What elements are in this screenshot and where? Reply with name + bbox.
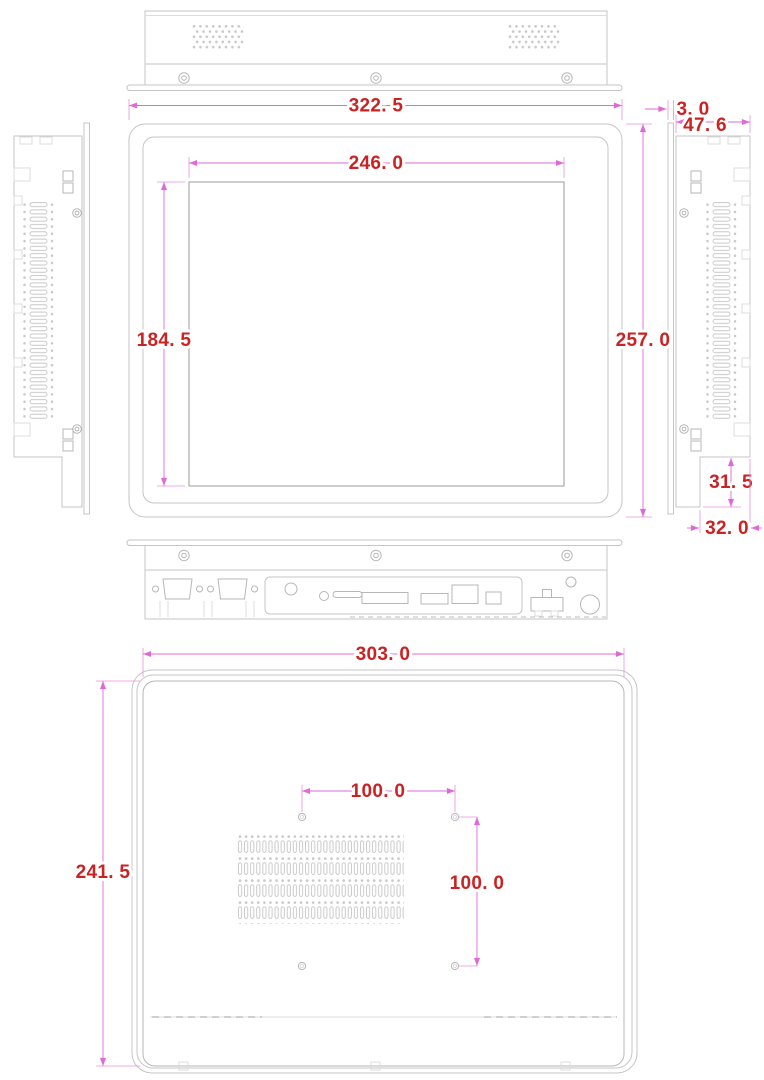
power-button [566,577,576,587]
front-view [129,124,622,517]
screw-icon [179,73,189,83]
power-terminal [531,590,563,617]
left-bezel-edge [84,123,90,514]
top-view [127,11,622,91]
vesa-hole [298,813,305,820]
screw-icon [179,550,189,560]
top-vent-holes-left [192,24,244,49]
dim-rear-height: 241. 5 [76,862,131,883]
dimension-annotations: 322. 5 246. 0 184. 5 257. 0 3. 0 47. 6 3… [76,96,762,1067]
screw-icon [680,209,689,218]
side-vent-slots [21,201,55,420]
io-recess-panel [265,577,522,614]
mounting-flange [127,540,622,546]
usb-port [421,594,448,605]
bottom-io-view [127,540,622,619]
mounting-flange [127,85,622,91]
dim-display-height: 184. 5 [137,330,192,351]
serial-port-connector [208,579,258,599]
top-vent-holes-right [508,24,560,49]
screw-icon [562,550,572,560]
front-bezel [143,137,608,503]
side-vent-slots [704,201,738,420]
dim-step-height: 31. 5 [709,472,753,493]
right-side-view [668,123,750,514]
dim-chassis-depth: 47. 6 [683,115,727,136]
serial-port-connector [153,579,203,599]
dim-front-overall-height: 257. 0 [616,330,671,351]
rear-vent-grid [237,834,404,924]
port [486,592,501,604]
port [362,593,408,604]
screw-icon [371,550,381,560]
power-jack [581,595,600,614]
vesa-hole [298,962,305,969]
dim-step-depth: 32. 0 [705,518,749,539]
panel-pc-dimension-drawing: 322. 5 246. 0 184. 5 257. 0 3. 0 47. 6 3… [0,0,764,1080]
audio-jack [285,583,297,595]
screw-icon [371,73,381,83]
lan-port [452,585,478,604]
bottom-view-body [145,546,607,620]
vesa-hole [451,962,458,969]
screw-icon [562,73,572,83]
rear-view [132,670,637,1073]
screw-icon [680,425,689,434]
dim-rear-width: 303. 0 [356,644,411,665]
dim-vesa-vertical: 100. 0 [450,873,505,894]
dim-display-width: 246. 0 [349,153,404,174]
left-side-view [14,123,90,514]
screw-icon [73,209,82,218]
right-bezel-edge [668,123,674,514]
round-connector [320,592,329,601]
vesa-hole [451,813,458,820]
screw-icon [73,425,82,434]
card-slot [333,592,362,598]
display-area [189,182,564,486]
dim-front-overall-width: 322. 5 [349,96,404,117]
front-outer-frame [129,124,622,517]
dim-vesa-horizontal: 100. 0 [351,781,406,802]
hidden-lines [160,601,254,617]
drawing-canvas: 322. 5 246. 0 184. 5 257. 0 3. 0 47. 6 3… [0,0,764,1080]
